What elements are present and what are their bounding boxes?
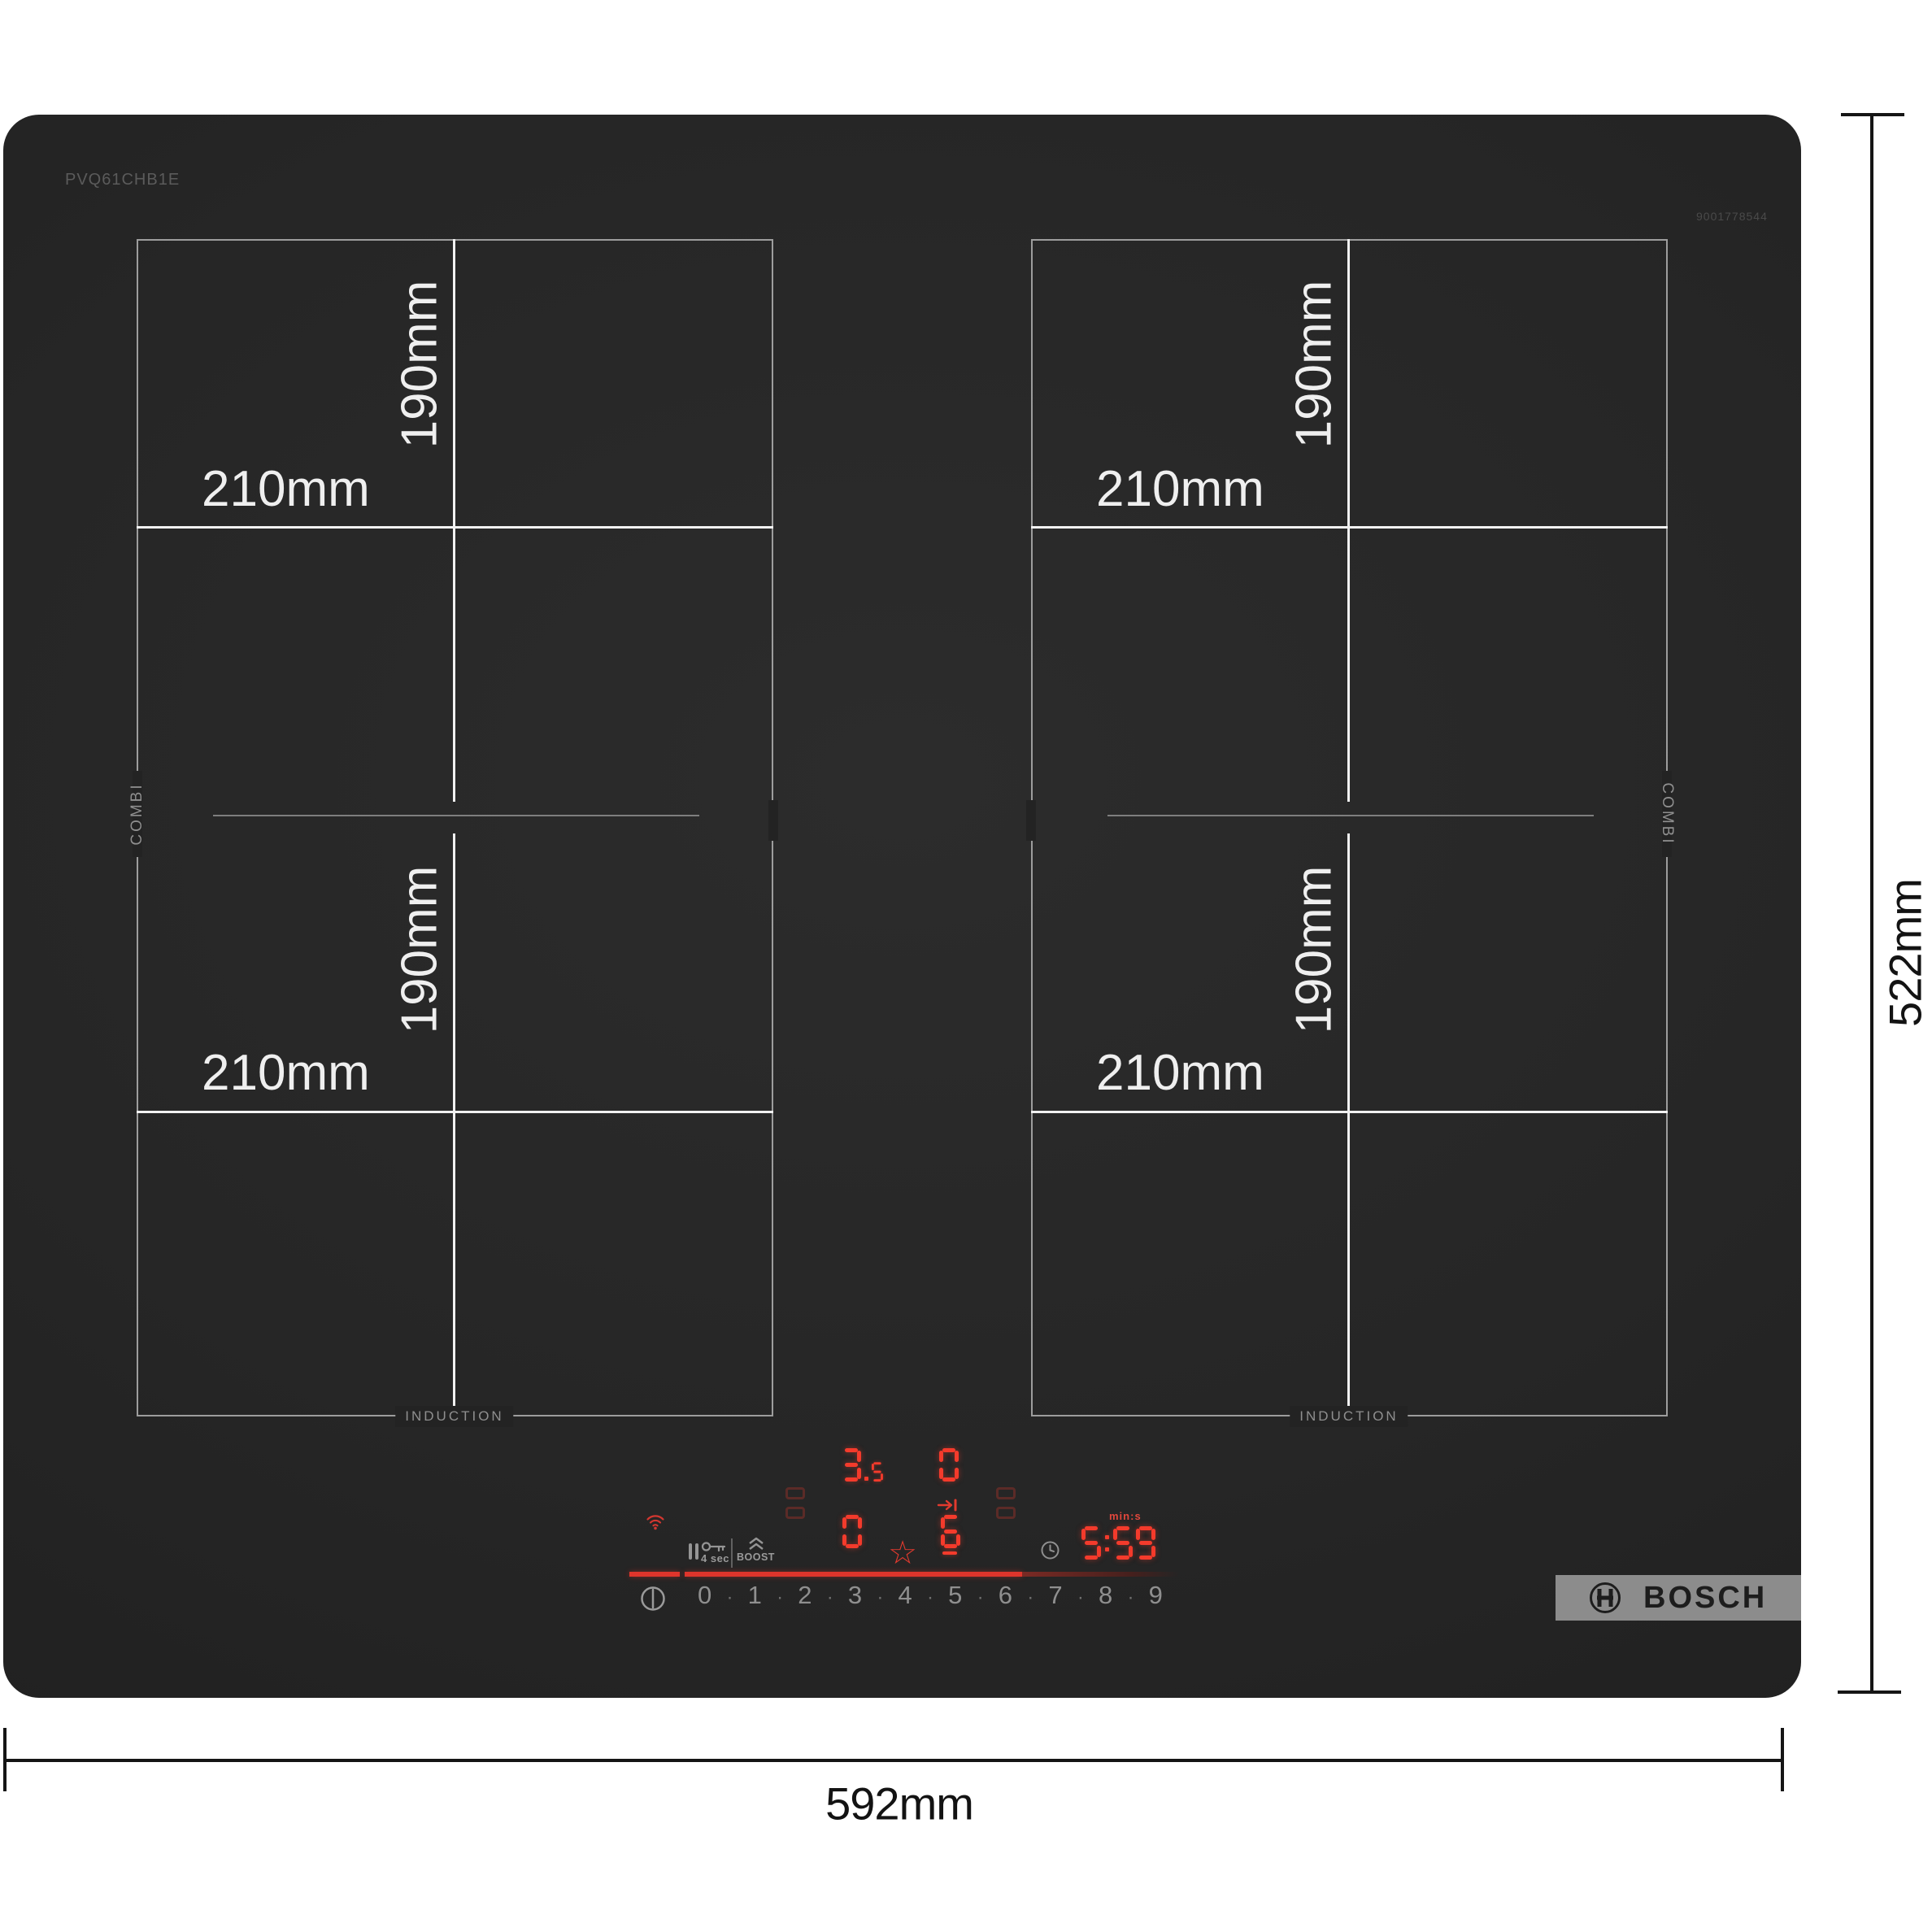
lock-hold-label: 4 sec	[701, 1552, 729, 1564]
clock-icon[interactable]	[1040, 1540, 1060, 1560]
bosch-armature-icon	[1588, 1581, 1622, 1615]
level-separator-dot: ·	[726, 1586, 733, 1609]
zone-centerline-vertical-rear-right	[1347, 239, 1350, 802]
power-display-front-left	[842, 1515, 862, 1548]
timer-unit-label: min:s	[1109, 1510, 1142, 1522]
dimension-line-height	[1870, 115, 1873, 1692]
level-separator-dot: ·	[827, 1586, 833, 1609]
zone-centerline-horizontal-rear-left	[137, 526, 773, 529]
level-separator-dot: ·	[977, 1586, 984, 1609]
power-level-7[interactable]: 7	[1048, 1581, 1062, 1610]
boost-label[interactable]: BOOST	[737, 1551, 775, 1563]
width-dimension-label: 592mm	[825, 1778, 973, 1830]
edge-gap-mid-right	[1026, 800, 1036, 841]
dimension-tick-top	[1841, 113, 1904, 116]
power-level-5[interactable]: 5	[948, 1581, 962, 1610]
zone-height-label-rear-right: 190mm	[1286, 281, 1343, 449]
level-separator-dot: ·	[1027, 1586, 1033, 1609]
zone-height-label-front-left: 190mm	[391, 866, 449, 1034]
zone-height-label-rear-left: 190mm	[391, 281, 449, 449]
power-level-3[interactable]: 3	[848, 1581, 862, 1610]
progress-bar-fade	[1022, 1572, 1179, 1577]
combi-separator-left	[213, 815, 699, 816]
power-button-icon[interactable]	[639, 1585, 667, 1612]
dimension-tick-right	[1781, 1728, 1784, 1791]
brand-logo-bar: BOSCH	[1556, 1575, 1801, 1621]
power-level-6[interactable]: 6	[999, 1581, 1012, 1610]
induction-label-left: INDUCTION	[395, 1406, 513, 1427]
power-display-rear-right	[939, 1448, 959, 1482]
dimension-tick-bottom	[1838, 1690, 1901, 1694]
level-separator-dot: ·	[1077, 1586, 1084, 1609]
ghost-display-right	[996, 1487, 1016, 1519]
model-number: PVQ61CHB1E	[65, 171, 180, 189]
power-level-4[interactable]: 4	[899, 1581, 912, 1610]
zone-centerline-horizontal-rear-right	[1031, 526, 1668, 529]
edge-gap-mid-left	[768, 800, 778, 841]
zone-width-label-front-right: 210mm	[1096, 1044, 1264, 1102]
level-separator-dot: ·	[877, 1586, 883, 1609]
serial-number: 9001778544	[1696, 210, 1768, 223]
induction-label-right: INDUCTION	[1290, 1406, 1408, 1427]
power-level-slider[interactable]: 0·1·2·3·4·5·6·7·8·9	[698, 1581, 1163, 1613]
progress-bar-segment-main	[685, 1572, 1022, 1577]
zone-width-label-front-left: 210mm	[202, 1044, 370, 1102]
combi-label-right: COMBI	[1658, 782, 1676, 845]
dimension-line-width	[5, 1759, 1784, 1762]
zone-height-label-front-right: 190mm	[1286, 866, 1343, 1034]
level-separator-dot: ·	[927, 1586, 933, 1609]
move-arrow-bar-icon	[937, 1499, 959, 1512]
zone-centerline-vertical-rear-left	[453, 239, 455, 802]
zone-centerline-vertical-front-left	[453, 833, 455, 1416]
zone-centerline-vertical-front-right	[1347, 833, 1350, 1416]
brand-name: BOSCH	[1643, 1581, 1767, 1616]
wifi-icon	[646, 1512, 665, 1530]
power-level-2[interactable]: 2	[798, 1581, 812, 1610]
level-separator-dot: ·	[1127, 1586, 1134, 1609]
level-separator-dot: ·	[777, 1586, 783, 1609]
move-level-underline	[942, 1551, 957, 1555]
panel-divider	[731, 1538, 733, 1568]
star-icon[interactable]: ☆	[888, 1537, 917, 1569]
combi-separator-right	[1107, 815, 1594, 816]
dimension-tick-left	[3, 1728, 7, 1791]
zone-width-label-rear-left: 210mm	[202, 460, 370, 518]
power-level-1[interactable]: 1	[748, 1581, 762, 1610]
ghost-display-left	[785, 1487, 805, 1519]
power-level-9[interactable]: 9	[1149, 1581, 1163, 1610]
timer-display	[1081, 1526, 1155, 1560]
power-level-0[interactable]: 0	[698, 1581, 711, 1610]
power-display-rear-left	[842, 1448, 883, 1482]
progress-bar-segment-power	[629, 1572, 680, 1577]
power-level-8[interactable]: 8	[1099, 1581, 1112, 1610]
height-dimension-label: 522mm	[1879, 879, 1932, 1027]
pause-icon[interactable]	[689, 1543, 698, 1560]
zone-centerline-horizontal-front-left	[137, 1111, 773, 1113]
boost-chevrons-icon[interactable]	[746, 1537, 767, 1551]
combi-label-left: COMBI	[128, 782, 146, 845]
power-display-front-right	[941, 1515, 960, 1548]
zone-centerline-horizontal-front-right	[1031, 1111, 1668, 1113]
zone-width-label-rear-right: 210mm	[1096, 460, 1264, 518]
